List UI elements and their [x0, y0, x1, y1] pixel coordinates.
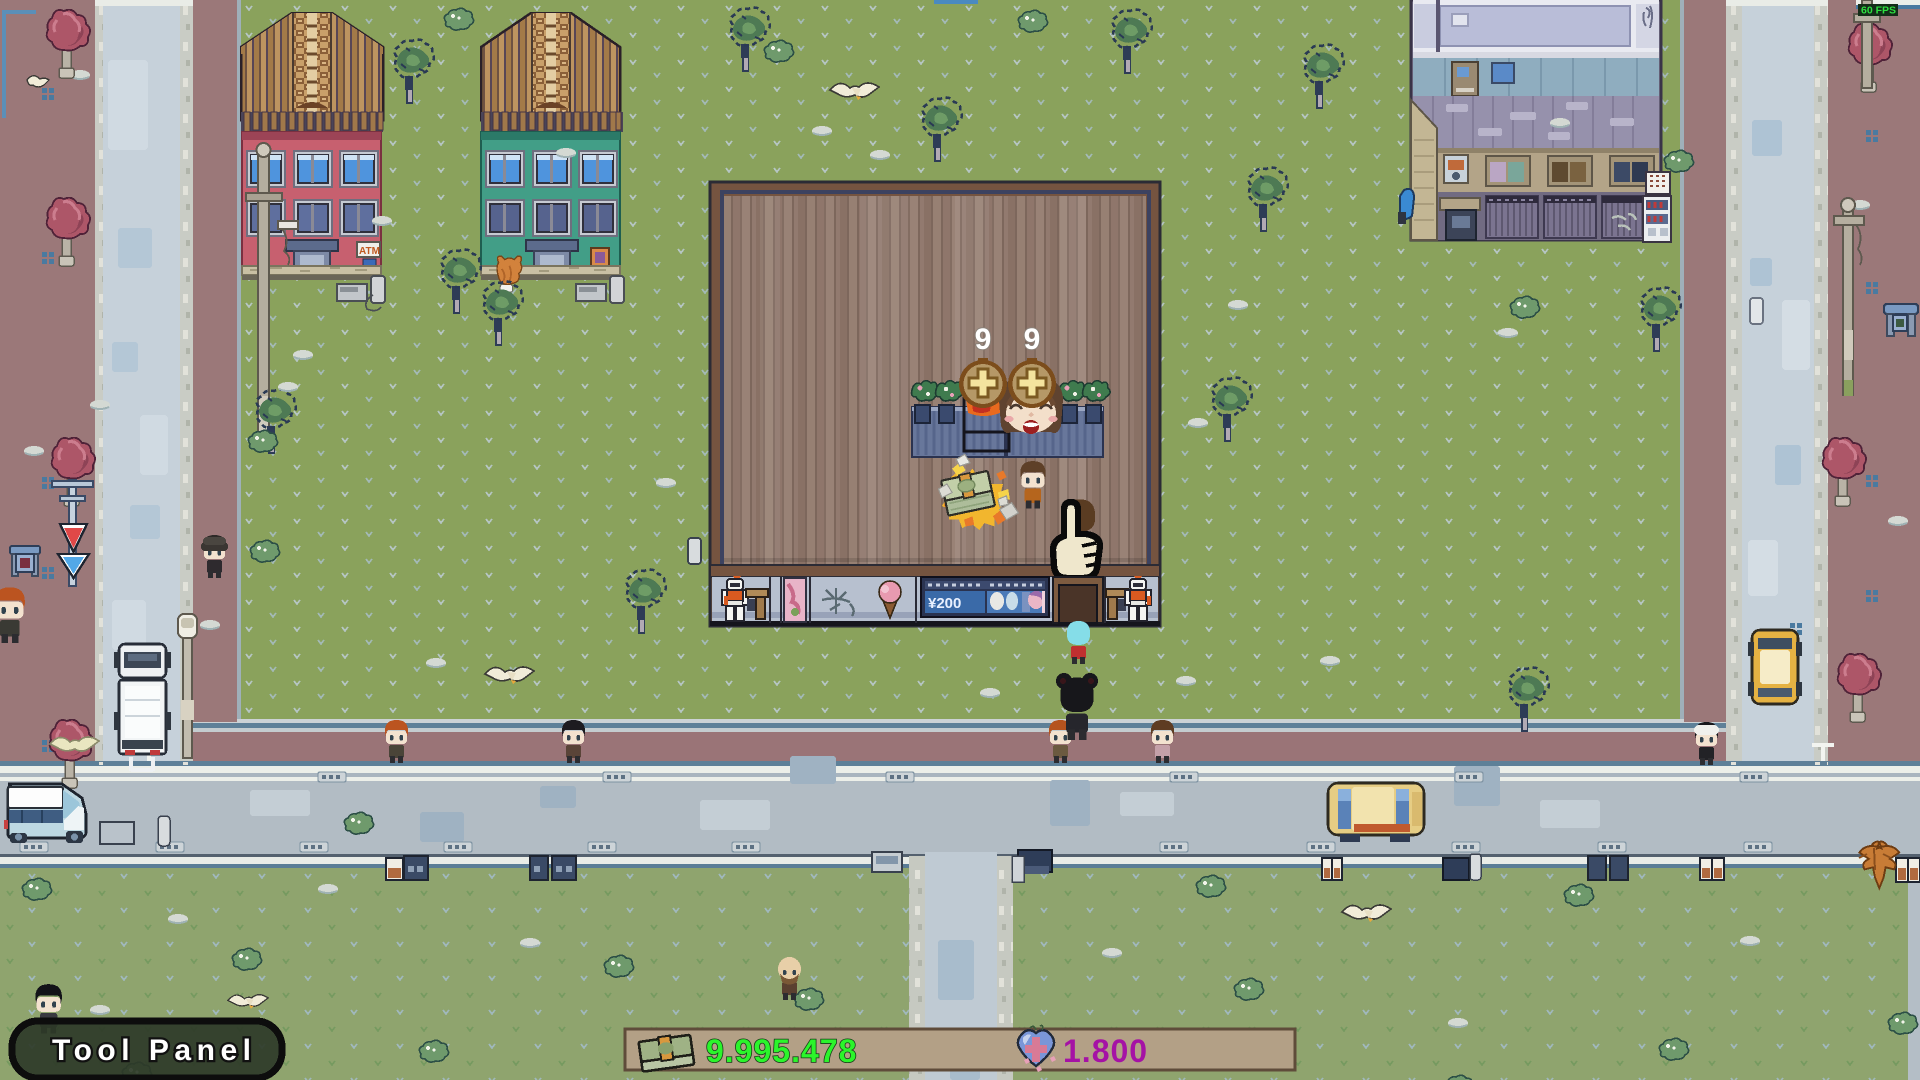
- svg-text:9: 9: [975, 323, 992, 356]
- svg-text:Tool Panel: Tool Panel: [52, 1034, 256, 1067]
- svg-text:ATM: ATM: [359, 246, 380, 257]
- svg-text:60 FPS: 60 FPS: [1861, 5, 1896, 17]
- svg-text:9.995.478: 9.995.478: [706, 1033, 857, 1069]
- svg-text:1.800: 1.800: [1063, 1033, 1148, 1069]
- svg-text:9: 9: [1024, 323, 1041, 356]
- svg-text:¥200: ¥200: [928, 595, 961, 612]
